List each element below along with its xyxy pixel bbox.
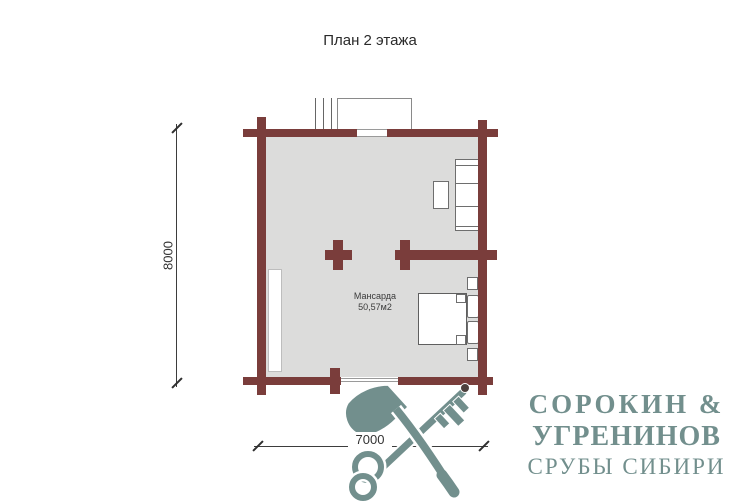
window-top	[357, 129, 387, 137]
logo-company-name-line1: СОРОКИН &	[503, 388, 750, 420]
bed-fold-mark	[456, 294, 466, 303]
bed-fold-mark	[456, 335, 466, 345]
wardrobe	[455, 159, 479, 231]
wardrobe-shelf-line	[456, 183, 478, 184]
room-area: 50,57м2	[330, 302, 420, 313]
exterior-wall-left	[257, 117, 266, 395]
nightstand-cabinet	[433, 181, 449, 209]
wardrobe-shelf-line	[456, 165, 478, 166]
dimension-tick	[171, 122, 182, 133]
logo-company-name-line2: УГРЕНИНОВ	[503, 420, 750, 454]
chimney-line	[331, 98, 332, 133]
interior-wall	[395, 250, 497, 260]
chimney-line	[315, 98, 316, 133]
window-line	[357, 136, 387, 137]
room-label: Мансарда 50,57м2	[330, 291, 420, 313]
dimension-line-height	[176, 124, 177, 387]
dimension-tick	[171, 377, 182, 388]
floor-plan-page: План 2 этажа Мансарда 50,5	[0, 0, 753, 502]
dimension-label-height: 8000	[161, 238, 176, 274]
window-line	[357, 129, 387, 130]
stair-opening	[268, 269, 282, 372]
page-title: План 2 этажа	[245, 32, 495, 49]
room-name: Мансарда	[330, 291, 420, 302]
log-end	[400, 240, 410, 270]
chimney-line	[323, 98, 324, 133]
wardrobe-shelf-line	[456, 226, 478, 227]
log-column	[333, 240, 343, 270]
bedside-table	[467, 348, 478, 361]
logo-tagline: СРУБЫ СИБИРИ	[503, 454, 750, 480]
wardrobe-shelf-line	[456, 206, 478, 207]
dormer-outline	[337, 98, 412, 130]
company-logo: СОРОКИН & УГРЕНИНОВ СРУБЫ СИБИРИ	[503, 388, 750, 480]
bedside-table	[467, 277, 478, 290]
dimension-label-width: 7000	[348, 432, 392, 447]
